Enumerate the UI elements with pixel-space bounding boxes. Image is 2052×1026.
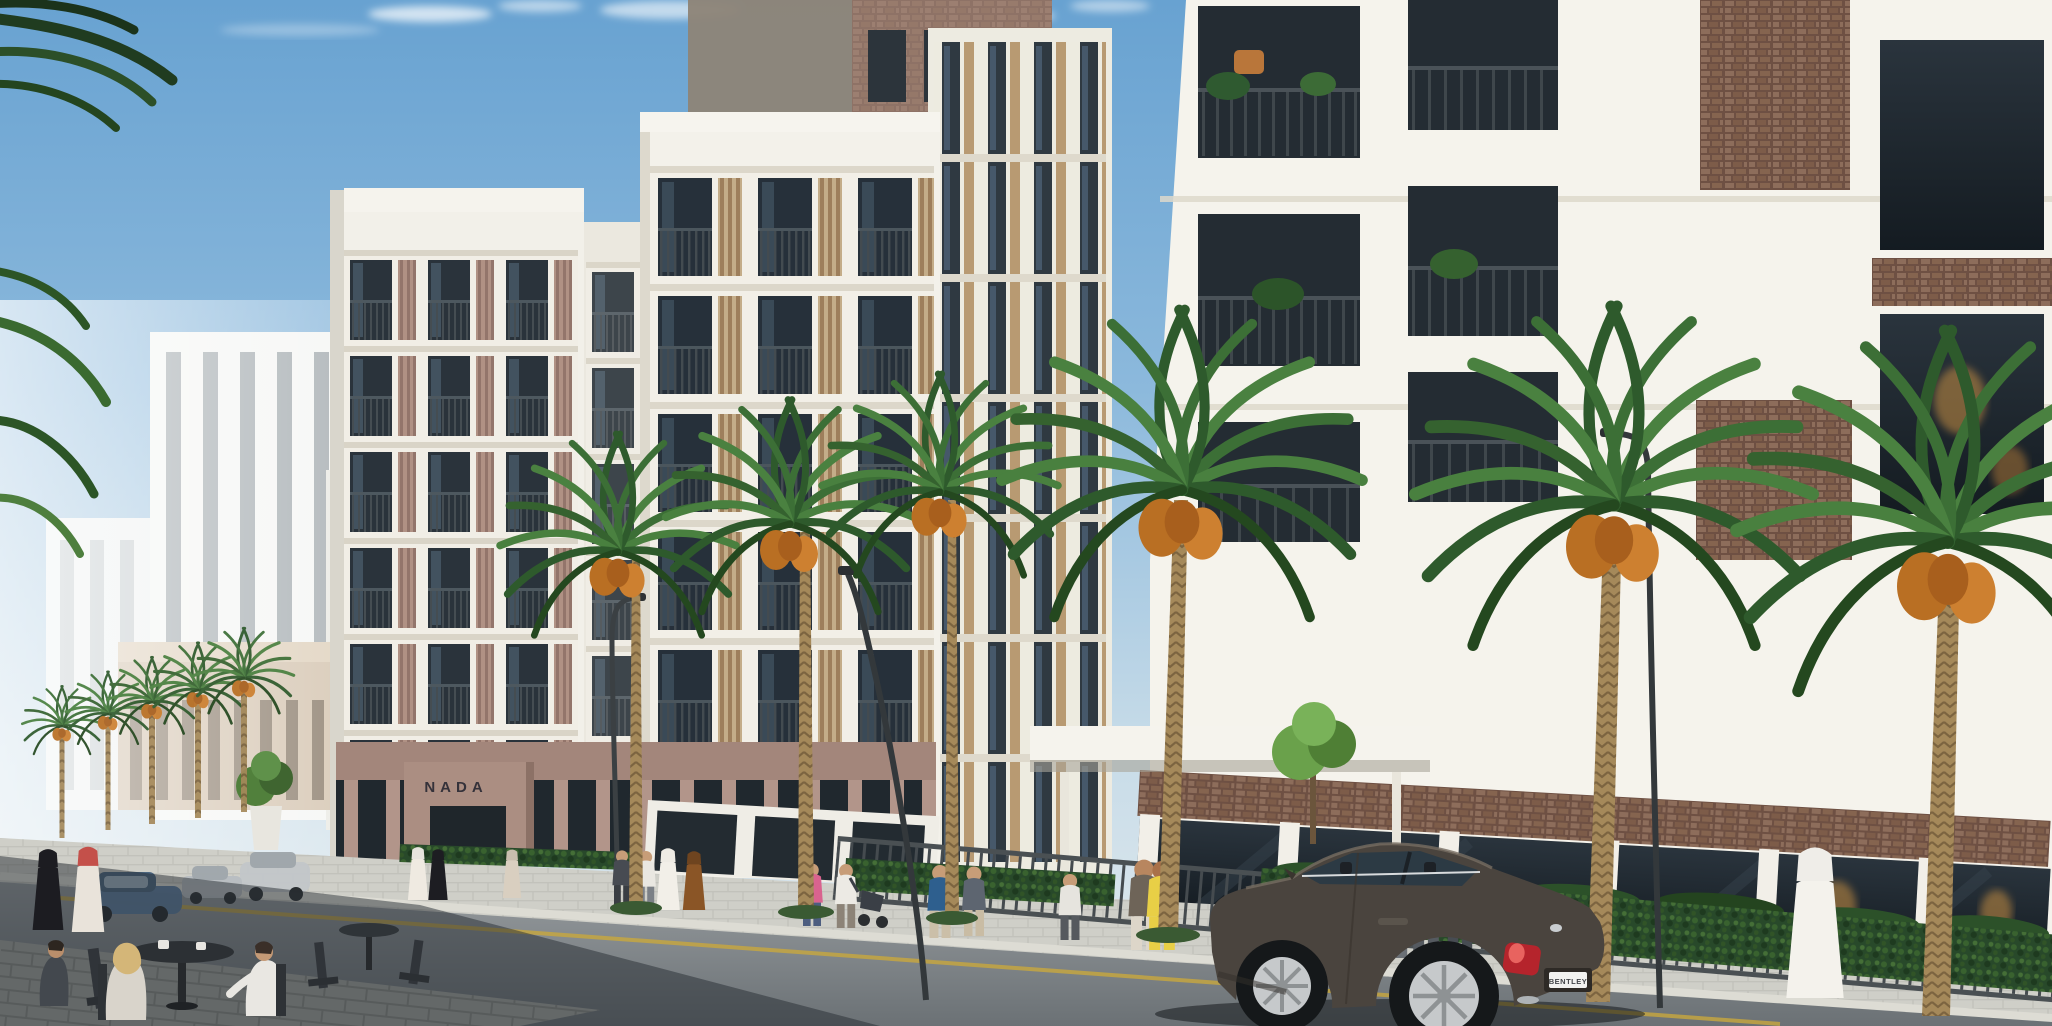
streetscape-scene: NADA [0,0,2052,1026]
license-plate-text: BENTLEY [1549,977,1588,986]
nada-sign: NADA [424,779,487,796]
